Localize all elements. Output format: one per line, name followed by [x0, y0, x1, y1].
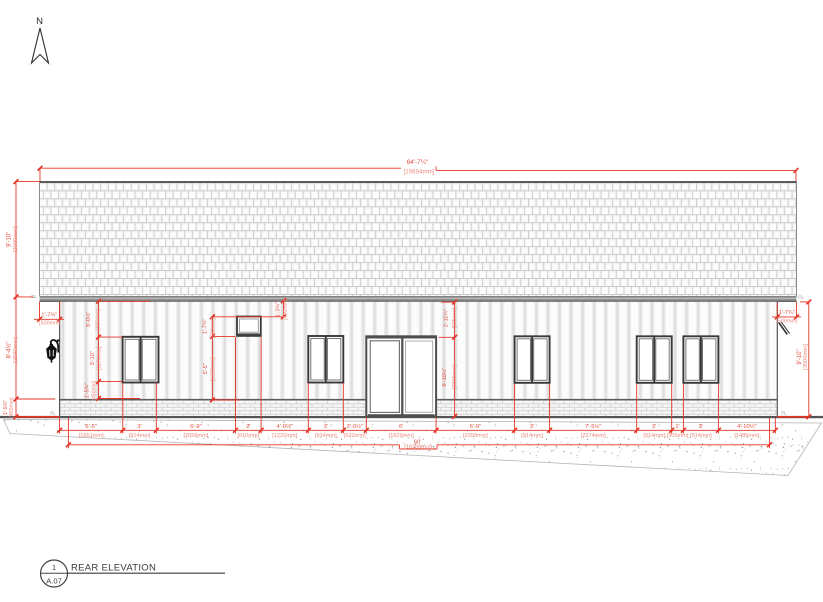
svg-text:3'-0½": 3'-0½"	[85, 311, 92, 327]
svg-text:CL: CL	[798, 294, 804, 299]
svg-text:[914mm]: [914mm]	[643, 433, 665, 439]
svg-text:9'-10": 9'-10"	[797, 349, 803, 364]
svg-text:8'-4½": 8'-4½"	[6, 342, 13, 359]
svg-text:1'-5¾": 1'-5¾"	[85, 383, 91, 398]
svg-text:3'-10": 3'-10"	[90, 351, 96, 365]
svg-text:3': 3'	[137, 424, 141, 430]
svg-text:[19694mm]: [19694mm]	[404, 168, 435, 175]
svg-text:[914mm]: [914mm]	[690, 433, 712, 439]
svg-text:[1170mm]: [1170mm]	[97, 346, 103, 370]
svg-text:3': 3'	[699, 424, 703, 430]
svg-text:6'-10½": 6'-10½"	[441, 368, 448, 387]
svg-text:[622mm]: [622mm]	[344, 433, 366, 439]
svg-text:N: N	[36, 16, 43, 27]
svg-text:7'-5½": 7'-5½"	[585, 423, 601, 430]
svg-text:CL: CL	[31, 294, 37, 299]
svg-text:3': 3'	[530, 424, 534, 430]
svg-text:2'-11¼": 2'-11¼"	[443, 309, 449, 327]
svg-text:[500mm]: [500mm]	[210, 318, 216, 339]
svg-text:[1829mm]: [1829mm]	[389, 433, 414, 439]
svg-text:[500mm]: [500mm]	[39, 321, 60, 327]
svg-text:[2590mm]: [2590mm]	[13, 337, 19, 363]
svg-text:6': 6'	[399, 424, 403, 430]
svg-text:4'-0½": 4'-0½"	[277, 423, 293, 430]
svg-text:[610mm]: [610mm]	[237, 433, 259, 439]
svg-text:[1650mm]: [1650mm]	[210, 357, 216, 381]
svg-text:A.07: A.07	[46, 577, 62, 586]
svg-text:2': 2'	[246, 424, 250, 430]
svg-text:[914mm]: [914mm]	[521, 433, 543, 439]
svg-text:[2274mm]: [2274mm]	[581, 433, 606, 439]
svg-text:1': 1'	[675, 424, 679, 430]
svg-text:[914mm]: [914mm]	[129, 433, 151, 439]
svg-text:6'-9": 6'-9"	[470, 424, 482, 430]
svg-text:1'-3¾": 1'-3¾"	[276, 302, 282, 317]
svg-text:[305mm]: [305mm]	[667, 433, 689, 439]
svg-text:REAR ELEVATION: REAR ELEVATION	[71, 563, 156, 574]
svg-text:2'-0½": 2'-0½"	[347, 423, 363, 430]
svg-text:3': 3'	[324, 424, 328, 430]
svg-text:5'-5": 5'-5"	[85, 424, 97, 430]
svg-text:[400mm]: [400mm]	[283, 299, 289, 320]
svg-text:[2095mm]: [2095mm]	[452, 365, 458, 389]
svg-text:3': 3'	[652, 424, 656, 430]
svg-text:[450mm]: [450mm]	[92, 380, 98, 400]
svg-text:FL: FL	[50, 410, 56, 415]
svg-text:[930mm]: [930mm]	[96, 308, 102, 329]
svg-text:64'-7¼": 64'-7¼"	[407, 159, 429, 166]
svg-text:[2058mm]: [2058mm]	[183, 433, 208, 439]
svg-text:[450mm]: [450mm]	[9, 397, 15, 418]
svg-text:[2058mm]: [2058mm]	[463, 433, 488, 439]
svg-text:[1651mm]: [1651mm]	[79, 433, 104, 439]
svg-text:4'-10½": 4'-10½"	[737, 423, 757, 430]
svg-text:[3000mm]: [3000mm]	[803, 344, 809, 370]
svg-text:[905mm]: [905mm]	[452, 308, 458, 329]
svg-text:1: 1	[52, 563, 56, 572]
svg-text:[1232mm]: [1232mm]	[272, 433, 297, 439]
svg-text:[914mm]: [914mm]	[315, 433, 337, 439]
svg-text:1'-7¾": 1'-7¾"	[779, 310, 795, 316]
svg-text:9'-10": 9'-10"	[7, 232, 13, 247]
svg-text:5'-5": 5'-5"	[203, 363, 209, 374]
svg-text:[1486mm]: [1486mm]	[734, 433, 759, 439]
svg-text:[3000mm]: [3000mm]	[13, 226, 19, 252]
svg-text:1'-7¾": 1'-7¾"	[41, 313, 57, 319]
svg-text:[18288mm]: [18288mm]	[404, 444, 432, 450]
svg-text:6'-9": 6'-9"	[190, 424, 202, 430]
svg-text:FL: FL	[781, 410, 787, 415]
svg-text:[500mm]: [500mm]	[777, 318, 798, 324]
svg-text:1'-7¾": 1'-7¾"	[202, 319, 208, 334]
